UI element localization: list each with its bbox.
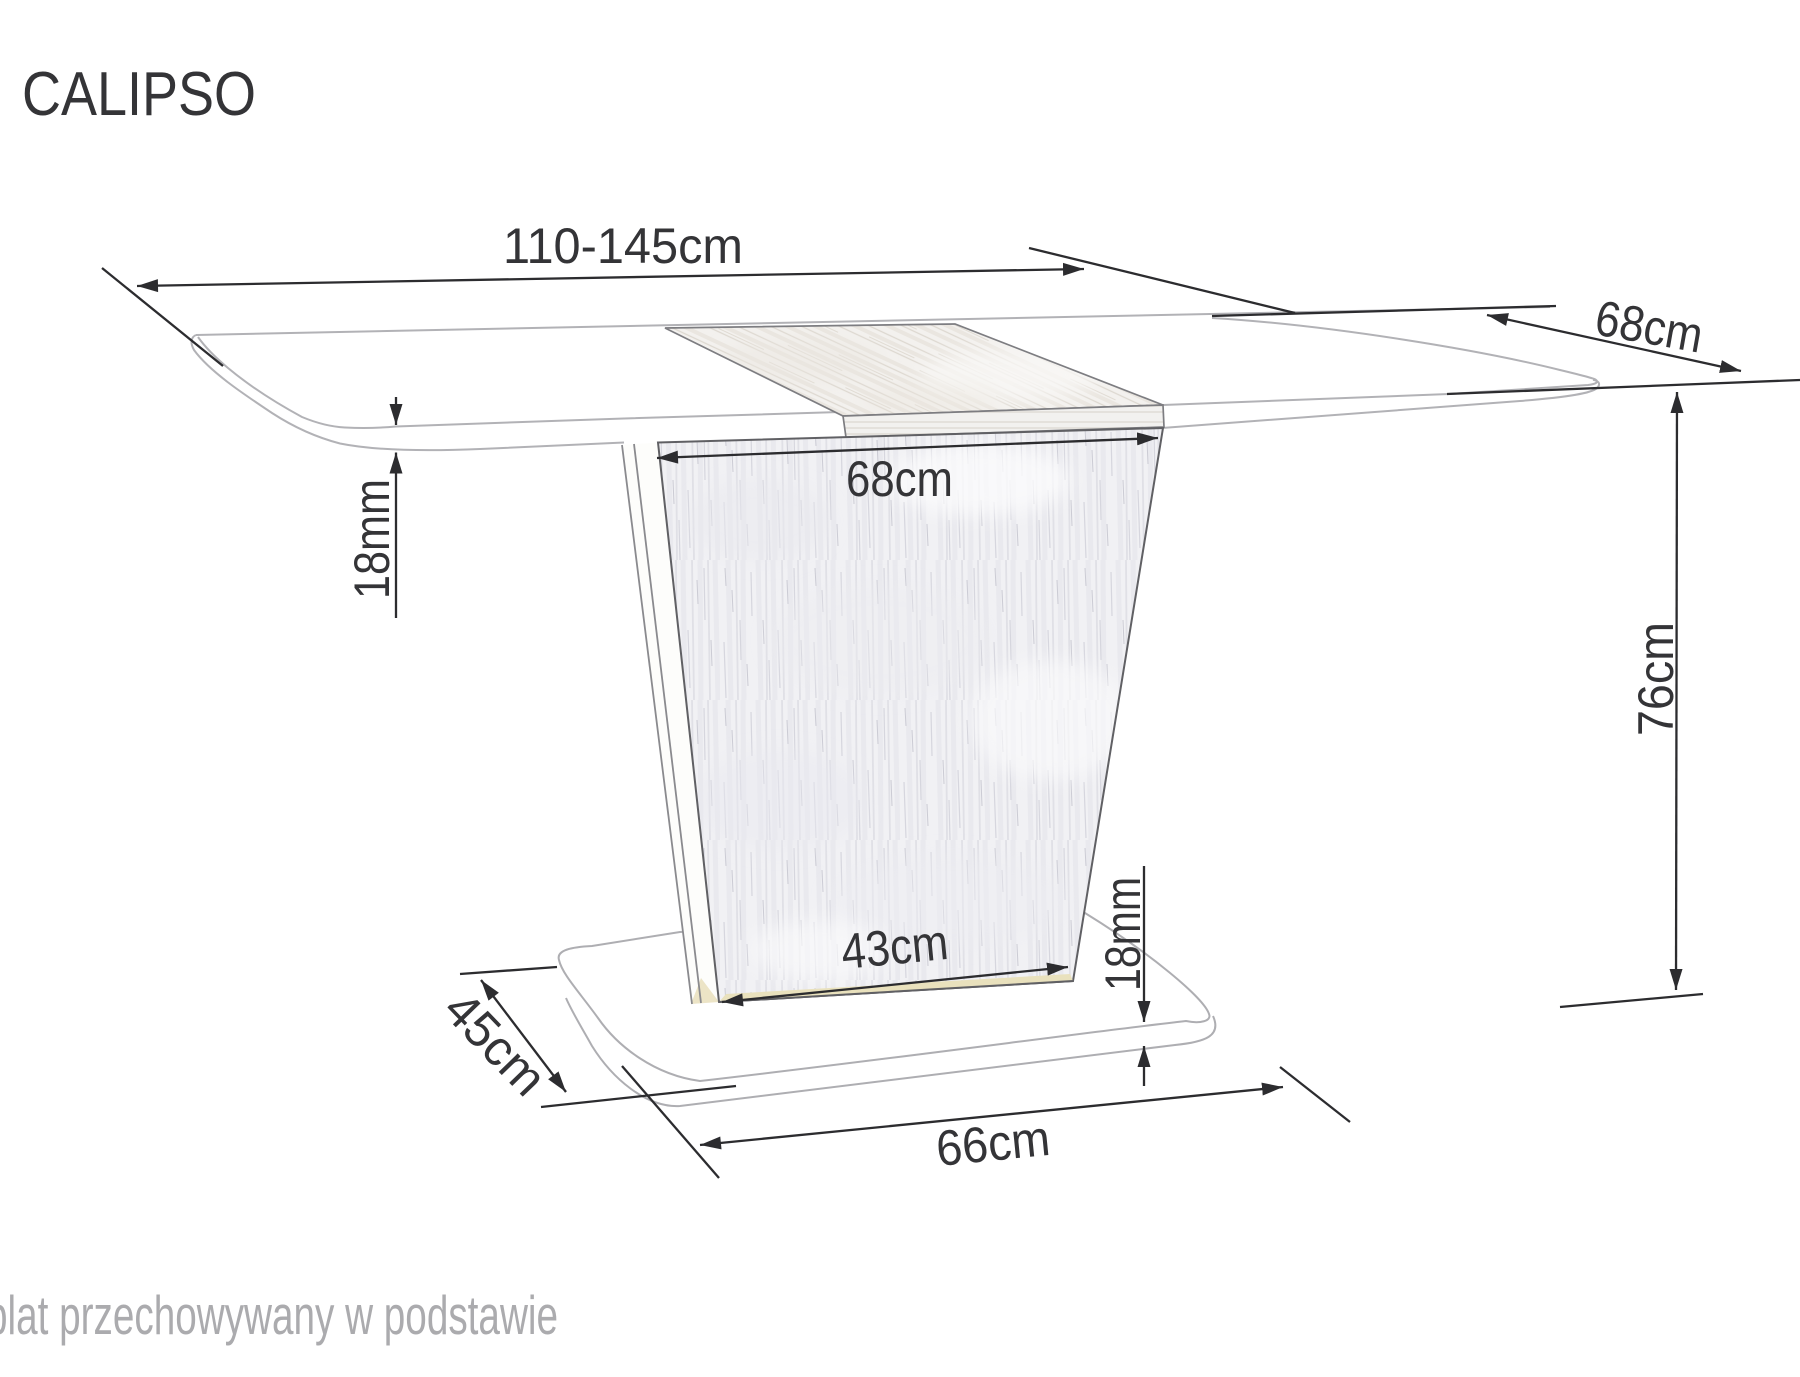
svg-text:18mm: 18mm bbox=[344, 479, 400, 599]
svg-text:18mm: 18mm bbox=[1095, 877, 1151, 991]
svg-text:CALIPSO: CALIPSO bbox=[22, 60, 256, 129]
svg-text:110-145cm: 110-145cm bbox=[503, 218, 743, 274]
svg-text:66cm: 66cm bbox=[934, 1110, 1053, 1177]
svg-text:68cm: 68cm bbox=[1591, 290, 1707, 364]
svg-text:76cm: 76cm bbox=[1628, 622, 1684, 736]
svg-text:blat przechowywany w podstawie: blat przechowywany w podstawie bbox=[0, 1284, 558, 1346]
svg-text:68cm: 68cm bbox=[846, 451, 953, 507]
svg-text:43cm: 43cm bbox=[839, 914, 951, 980]
